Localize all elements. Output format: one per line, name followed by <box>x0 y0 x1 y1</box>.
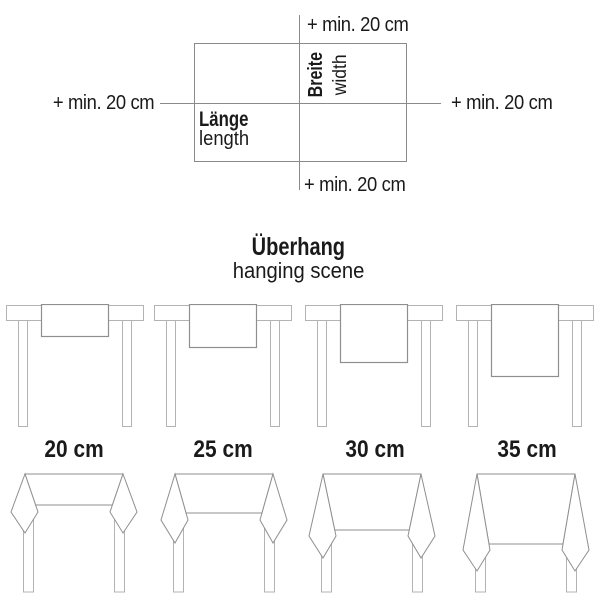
width-label-de: Breite <box>305 30 327 120</box>
length-label-en-text: length <box>199 128 249 151</box>
width-label-de-text: Breite <box>305 52 328 97</box>
size-label-30cm-text: 30 cm <box>345 438 404 462</box>
draped-table-figure <box>160 472 288 593</box>
margin-label-left-text: + min. 20 cm <box>53 92 154 114</box>
draped-table-figure <box>10 472 138 593</box>
size-label-30cm: 30 cm <box>325 438 425 462</box>
size-label-25cm: 25 cm <box>173 438 273 462</box>
margin-label-right: + min. 20 cm <box>451 92 561 114</box>
width-label-en: width <box>330 30 352 120</box>
overhang-subtitle: hanging scene <box>0 260 597 282</box>
width-label-en-text: width <box>330 55 352 96</box>
draped-table-figure <box>308 472 436 593</box>
overhang-title-text: Überhang <box>252 234 345 260</box>
hanging-table-figure <box>154 304 292 429</box>
length-label-en: length <box>199 128 254 151</box>
margin-label-bottom: + min. 20 cm <box>304 174 414 196</box>
tablecloth-size-guide: + min. 20 cm + min. 20 cm + min. 20 cm +… <box>0 0 600 600</box>
margin-label-bottom-text: + min. 20 cm <box>304 174 405 196</box>
hanging-table-figure <box>305 304 443 429</box>
size-label-20cm: 20 cm <box>24 438 124 462</box>
hanging-table-figure <box>6 304 144 429</box>
size-label-25cm-text: 25 cm <box>193 438 252 462</box>
margin-label-right-text: + min. 20 cm <box>451 92 552 114</box>
overhang-title: Überhang <box>0 234 597 260</box>
margin-label-left: + min. 20 cm <box>0 92 154 114</box>
hanging-table-figure <box>456 304 594 429</box>
size-label-35cm-text: 35 cm <box>497 438 556 462</box>
draped-table-figure <box>462 472 590 593</box>
size-label-20cm-text: 20 cm <box>44 438 103 462</box>
overhang-subtitle-text: hanging scene <box>233 260 365 282</box>
size-label-35cm: 35 cm <box>477 438 577 462</box>
